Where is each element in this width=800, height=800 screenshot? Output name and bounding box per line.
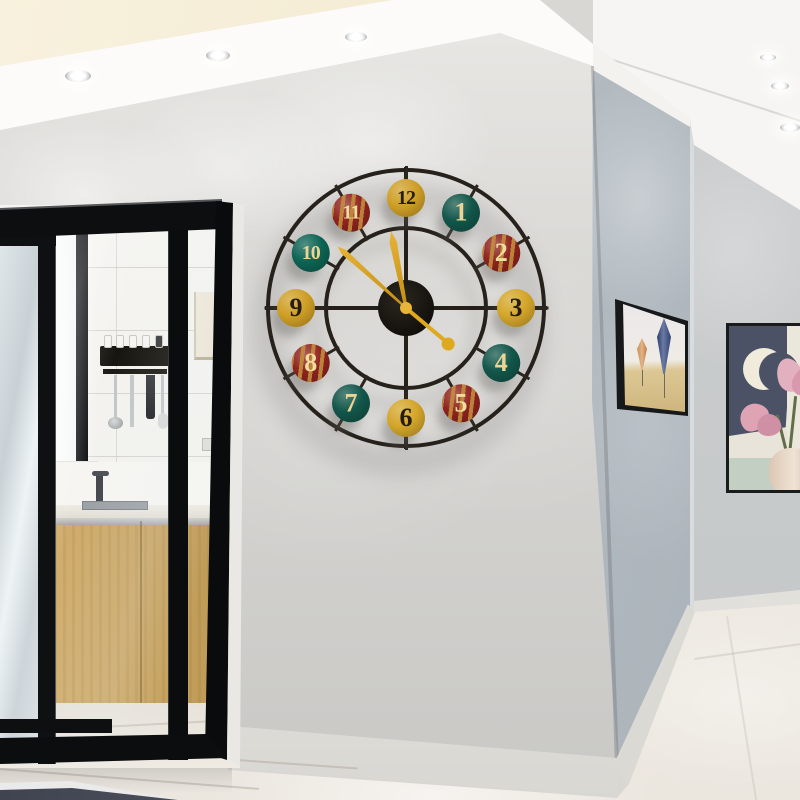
clock-number-disc: 9	[277, 289, 315, 327]
balloon-artwork	[613, 296, 691, 420]
clock-numeral: 5	[455, 390, 468, 416]
clock-number-disc: 1	[442, 194, 480, 232]
clock-numeral: 12	[397, 188, 415, 208]
clock-center-cap	[400, 302, 412, 314]
clock-numeral: 8	[304, 350, 317, 376]
clock-number-disc: 6	[387, 399, 425, 437]
clock-number-disc: 11	[332, 194, 370, 232]
clock-numeral: 11	[343, 203, 360, 223]
vase	[769, 448, 800, 490]
clock-number-disc: 5	[442, 384, 480, 422]
clock-numeral: 6	[400, 405, 413, 431]
balloon-string	[642, 370, 643, 386]
recessed-spotlight	[206, 50, 230, 61]
sliding-door-mid-stile	[168, 204, 188, 760]
moon-artwork-canvas	[729, 326, 800, 490]
clock-numeral: 1	[455, 200, 468, 226]
recessed-spotlight	[65, 70, 91, 82]
sliding-door-left-glass	[0, 208, 40, 764]
spotlight-core	[763, 56, 773, 60]
interior-photo-scene: 12 1 2 3 4 5 6 7 8 9 10 11	[0, 0, 800, 800]
clock-number-disc: 10	[292, 234, 330, 272]
tan-balloon-shape	[637, 338, 647, 370]
clock-number-disc: 2	[482, 234, 520, 272]
clock-numeral: 10	[302, 243, 320, 263]
moon-flower-artwork	[726, 323, 800, 493]
clock-numeral: 2	[495, 240, 508, 266]
clock-numeral: 9	[290, 295, 303, 321]
clock-numeral: 7	[345, 390, 358, 416]
clock-number-disc: 4	[482, 344, 520, 382]
spotlight-core	[784, 125, 796, 130]
sliding-door-left-bottom-rail	[0, 719, 112, 733]
hallway-spotlight	[760, 54, 776, 61]
recessed-spotlight	[345, 32, 367, 42]
clock-numeral: 3	[510, 295, 523, 321]
hallway-spotlight	[780, 123, 800, 132]
clock-number-disc: 3	[497, 289, 535, 327]
clock-number-disc: 12	[387, 179, 425, 217]
hallway-spotlight	[771, 82, 789, 90]
spotlight-core	[70, 73, 86, 79]
spotlight-core	[349, 35, 362, 40]
clock-number-disc: 7	[332, 384, 370, 422]
clock-numeral: 4	[495, 350, 508, 376]
blue-balloon-shape	[657, 318, 671, 374]
sliding-door-left-stile	[38, 208, 56, 764]
spotlight-core	[775, 84, 786, 88]
spotlight-core	[211, 53, 225, 59]
clock-number-disc: 8	[292, 344, 330, 382]
balloon-string	[664, 374, 665, 398]
